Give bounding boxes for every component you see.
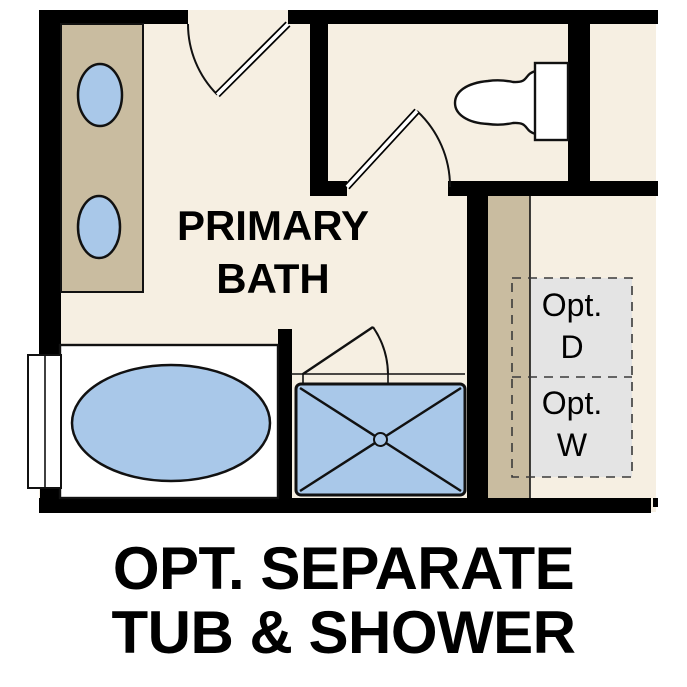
- wall-wc-left: [310, 24, 328, 181]
- room-label-line1: PRIMARY: [123, 199, 423, 252]
- wall-corridor: [467, 196, 488, 498]
- opt-washer-label-line1: Opt.: [512, 382, 632, 424]
- plan-caption-line1: OPT. SEPARATE: [0, 537, 687, 601]
- opt-washer-label-line2: W: [512, 424, 632, 466]
- opt-dryer-label-line2: D: [512, 326, 632, 368]
- toilet-tank: [535, 63, 568, 140]
- wall-edge-sliver-mid: [653, 181, 658, 196]
- plan-caption: OPT. SEPARATE TUB & SHOWER: [0, 537, 687, 665]
- vanity-sink-top: [78, 64, 122, 126]
- wall-bottom: [39, 498, 651, 513]
- wall-edge-sliver-bottom: [653, 498, 658, 507]
- window: [28, 355, 61, 488]
- vanity-sink-bottom: [78, 196, 120, 258]
- opt-washer-label: Opt. W: [512, 382, 632, 466]
- plan-caption-line2: TUB & SHOWER: [0, 601, 687, 665]
- opt-dryer-label: Opt. D: [512, 284, 632, 368]
- wall-wc-door-jamb: [310, 181, 347, 196]
- wall-top-right: [288, 10, 655, 24]
- wall-left-upper: [39, 24, 61, 356]
- tub-basin: [72, 365, 270, 481]
- bathtub: [60, 345, 278, 498]
- room-label-line2: BATH: [123, 252, 423, 305]
- wall-edge-sliver-top: [653, 10, 658, 24]
- wall-tub-shower-divider: [278, 329, 292, 498]
- wall-mid-horizontal: [448, 181, 655, 196]
- wall-wc-right: [568, 24, 590, 181]
- room-label: PRIMARY BATH: [123, 199, 423, 305]
- shower-drain-icon: [374, 433, 387, 446]
- opt-dryer-label-line1: Opt.: [512, 284, 632, 326]
- wall-top-left: [39, 10, 188, 24]
- floor-plan: PRIMARY BATH Opt. D Opt. W OPT. SEPARATE…: [0, 0, 687, 687]
